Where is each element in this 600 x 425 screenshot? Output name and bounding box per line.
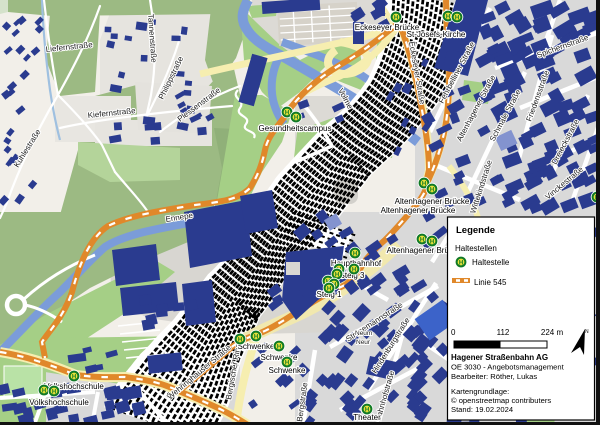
svg-text:Volkshochschule: Volkshochschule <box>29 398 89 407</box>
svg-text:Neur: Neur <box>356 339 371 346</box>
svg-text:Neum: Neum <box>355 330 372 337</box>
svg-text:Altenhagener Brücke: Altenhagener Brücke <box>381 206 456 215</box>
svg-text:OE 3030 - Angebotsmanagement: OE 3030 - Angebotsmanagement <box>451 363 565 372</box>
svg-text:Legende: Legende <box>456 225 495 236</box>
svg-text:224 m: 224 m <box>541 328 564 337</box>
svg-text:Altenhagener Brücke: Altenhagener Brücke <box>395 197 470 206</box>
svg-text:Hagener Straßenbahn AG: Hagener Straßenbahn AG <box>451 353 548 362</box>
svg-text:N: N <box>585 329 589 335</box>
svg-text:Kartengrundlage:: Kartengrundlage: <box>451 387 509 396</box>
svg-text:© openstreetmap contributers: © openstreetmap contributers <box>451 396 551 405</box>
svg-text:0: 0 <box>451 328 456 337</box>
svg-text:112: 112 <box>497 328 510 337</box>
svg-text:Linie 545: Linie 545 <box>474 278 507 287</box>
svg-text:Bearbeiter: Röther, Lukas: Bearbeiter: Röther, Lukas <box>451 372 537 381</box>
svg-text:Haltestelle: Haltestelle <box>472 258 510 267</box>
svg-text:St-Josefs-Kirche: St-Josefs-Kirche <box>407 30 466 39</box>
svg-text:Gesundheitscampus: Gesundheitscampus <box>259 124 332 133</box>
svg-text:Stand: 19.02.2024: Stand: 19.02.2024 <box>451 405 513 414</box>
svg-text:Haltestellen: Haltestellen <box>455 244 497 253</box>
